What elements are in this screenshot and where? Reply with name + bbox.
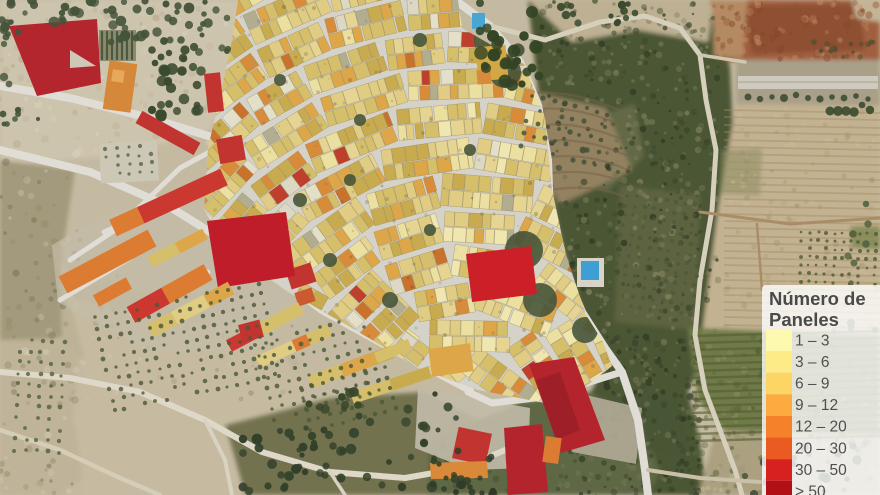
svg-text:1 – 3: 1 – 3 [795, 332, 829, 349]
svg-text:Número de: Número de [769, 288, 866, 309]
svg-text:3 – 6: 3 – 6 [795, 354, 829, 371]
svg-text:> 50: > 50 [795, 484, 826, 495]
svg-text:12 – 20: 12 – 20 [795, 419, 847, 436]
svg-text:9 – 12: 9 – 12 [795, 397, 838, 414]
svg-text:6 – 9: 6 – 9 [795, 376, 829, 393]
svg-text:20 – 30: 20 – 30 [795, 440, 847, 457]
svg-text:Paneles: Paneles [769, 309, 839, 330]
svg-text:30 – 50: 30 – 50 [795, 462, 847, 479]
